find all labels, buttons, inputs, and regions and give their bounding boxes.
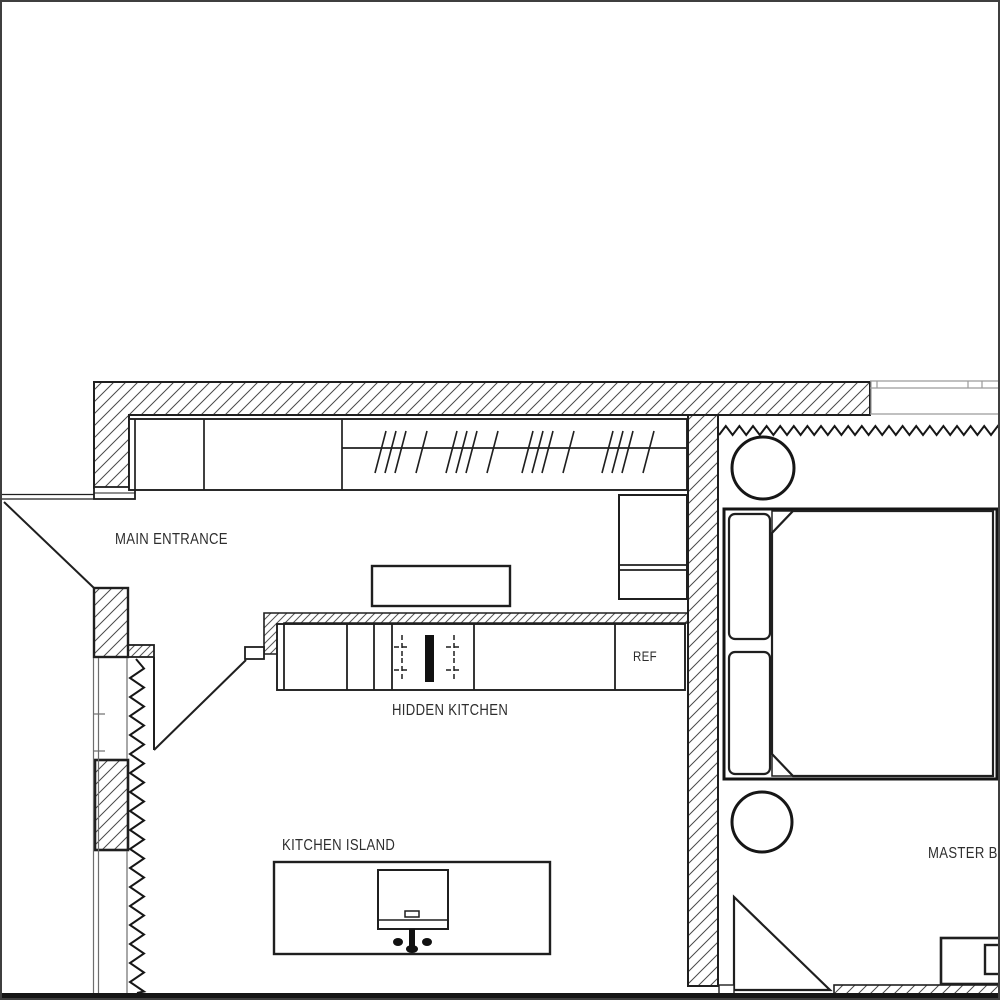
bedside-stool-top	[732, 437, 794, 499]
label-kitchen-island: KITCHEN ISLAND	[282, 837, 395, 855]
bed-blanket	[772, 511, 993, 776]
floor-plan-linework	[2, 2, 1000, 1000]
bed-pillow-1	[729, 514, 770, 639]
label-refrigerator: REF	[633, 648, 657, 664]
left-wall-pier	[95, 760, 128, 850]
bedroom-left-wall	[688, 415, 718, 986]
entry-side-wall-block	[94, 588, 128, 657]
left-window-zigzag	[130, 659, 144, 993]
label-main-entrance: MAIN ENTRANCE	[115, 531, 228, 549]
wardrobe	[129, 419, 687, 490]
range-hood	[372, 566, 510, 606]
bedroom-door	[734, 897, 830, 990]
wall-end-cap	[719, 985, 734, 994]
bed-pillow-2	[729, 652, 770, 774]
bedroom-curtain-zigzag	[719, 426, 1000, 435]
top-right-window	[870, 381, 1000, 414]
entry-wall-step	[128, 645, 154, 657]
kitchen-counter	[277, 624, 685, 690]
entrance-threshold	[2, 495, 94, 500]
interior-door-swing	[154, 660, 246, 750]
sink-drain	[405, 911, 419, 917]
media-console-inner	[985, 945, 1000, 974]
door-jamb	[245, 647, 264, 659]
label-hidden-kitchen: HIDDEN KITCHEN	[392, 702, 508, 720]
label-master-bedroom: MASTER BEDROOM	[928, 845, 1000, 863]
bottom-edge-bar	[2, 993, 1000, 1000]
bedside-stool-bottom	[732, 792, 792, 852]
floor-plan: MAIN ENTRANCE HIDDEN KITCHEN REF KITCHEN…	[0, 0, 1000, 1000]
tall-cabinet	[619, 495, 687, 599]
cooktop-bar	[425, 635, 434, 682]
entrance-door-swing	[4, 502, 94, 588]
